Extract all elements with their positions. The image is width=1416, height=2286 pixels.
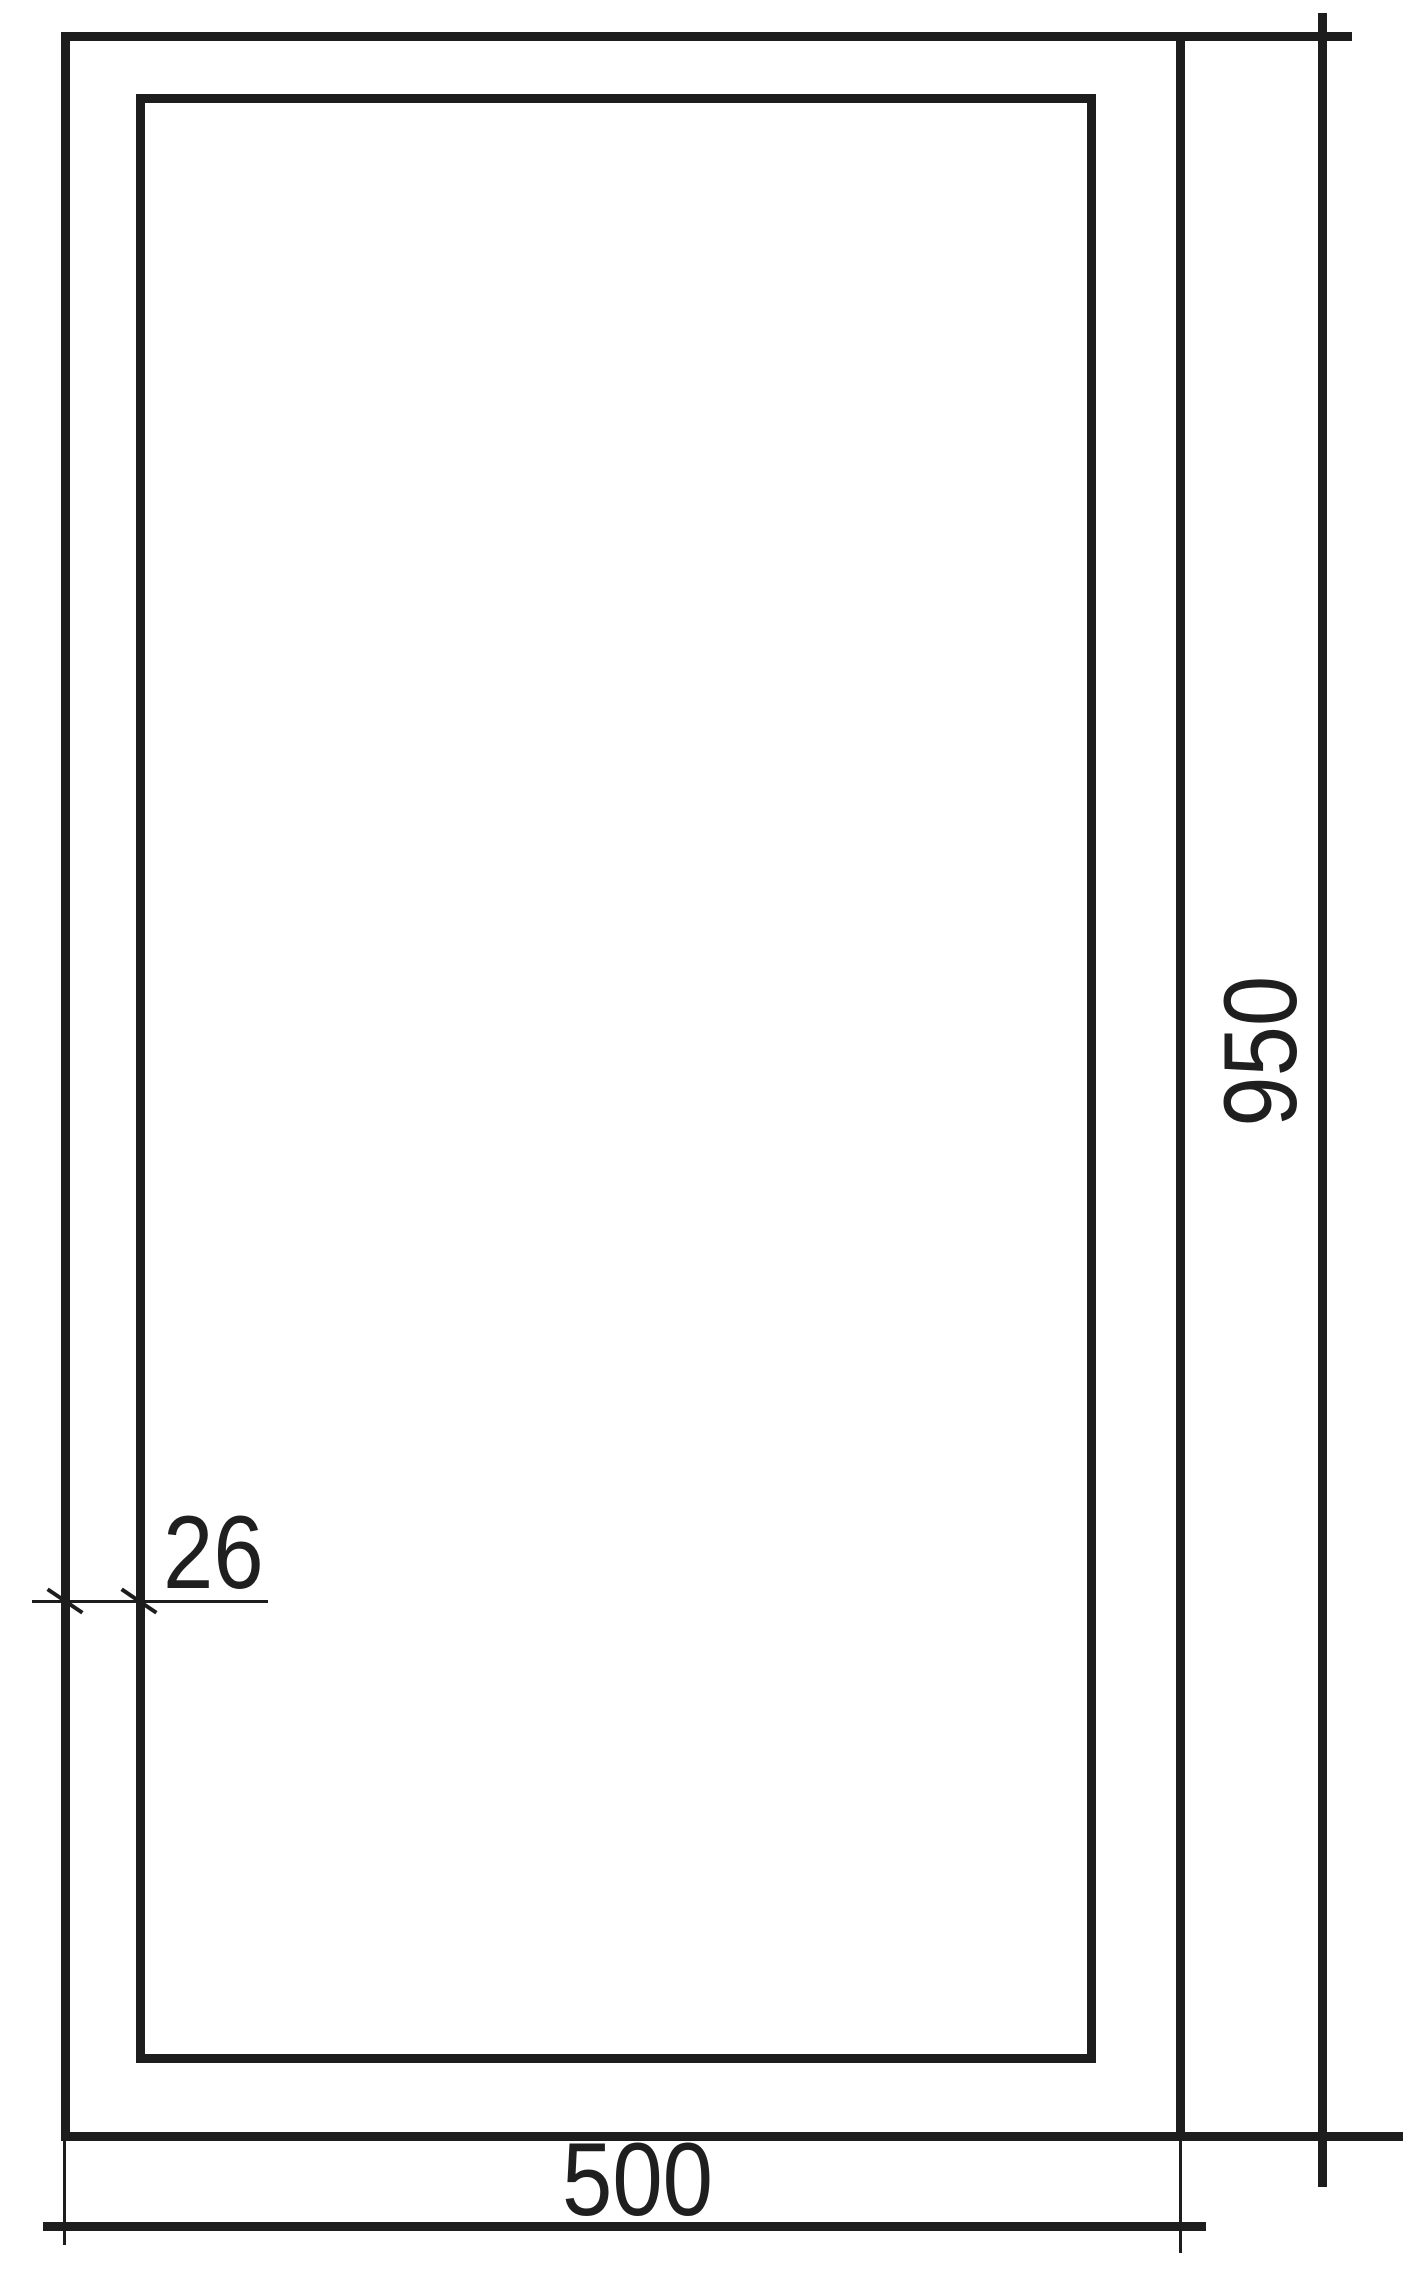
width-extension-line-right bbox=[1179, 2141, 1182, 2253]
width-dimension-value: 500 bbox=[562, 2128, 713, 2232]
height-dimension-value: 950 bbox=[1209, 976, 1313, 1127]
width-dimension-label: 500 bbox=[562, 2128, 736, 2232]
thickness-dimension-label: 26 bbox=[163, 1501, 279, 1605]
height-dimension-line bbox=[1318, 13, 1327, 2187]
bottom-edge-extension-line bbox=[1185, 2132, 1403, 2141]
width-extension-line-left bbox=[63, 2141, 66, 2245]
thickness-dimension-value: 26 bbox=[163, 1501, 264, 1605]
inner-frame-rect bbox=[136, 94, 1096, 2063]
technical-drawing-canvas: 26 500 950 bbox=[0, 0, 1416, 2286]
height-dimension-label: 950 bbox=[1209, 901, 1313, 1201]
